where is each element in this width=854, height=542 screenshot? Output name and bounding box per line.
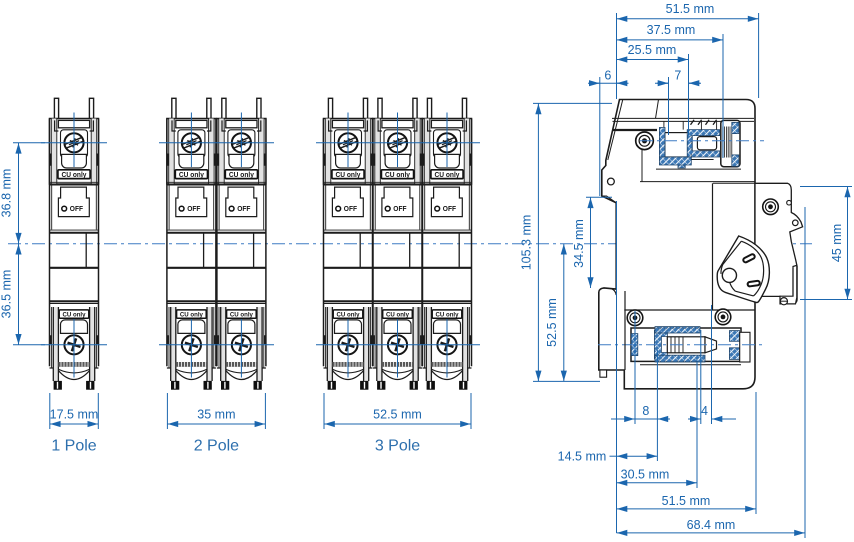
svg-text:36.5 mm: 36.5 mm	[0, 270, 14, 319]
svg-text:36.8 mm: 36.8 mm	[0, 169, 14, 218]
svg-text:45 mm: 45 mm	[830, 224, 844, 262]
svg-text:6: 6	[604, 68, 611, 82]
svg-text:7: 7	[674, 68, 681, 82]
svg-text:17.5 mm: 17.5 mm	[50, 408, 99, 422]
svg-text:35 mm: 35 mm	[197, 408, 235, 422]
svg-text:1 Pole: 1 Pole	[51, 438, 96, 455]
svg-text:14.5 mm: 14.5 mm	[558, 450, 607, 464]
svg-text:52.5 mm: 52.5 mm	[373, 408, 422, 422]
svg-text:8: 8	[642, 404, 649, 418]
svg-text:3 Pole: 3 Pole	[375, 438, 420, 455]
svg-text:34.5 mm: 34.5 mm	[572, 219, 586, 268]
svg-text:2 Pole: 2 Pole	[194, 438, 239, 455]
svg-text:30.5 mm: 30.5 mm	[621, 468, 670, 482]
svg-text:37.5 mm: 37.5 mm	[647, 23, 696, 37]
svg-text:105.3 mm: 105.3 mm	[520, 215, 534, 271]
svg-text:68.4 mm: 68.4 mm	[687, 518, 736, 532]
svg-text:51.5 mm: 51.5 mm	[666, 2, 715, 16]
svg-text:52.5 mm: 52.5 mm	[545, 298, 559, 347]
svg-text:4: 4	[701, 404, 708, 418]
svg-text:25.5 mm: 25.5 mm	[628, 43, 677, 57]
svg-text:51.5 mm: 51.5 mm	[662, 494, 711, 508]
